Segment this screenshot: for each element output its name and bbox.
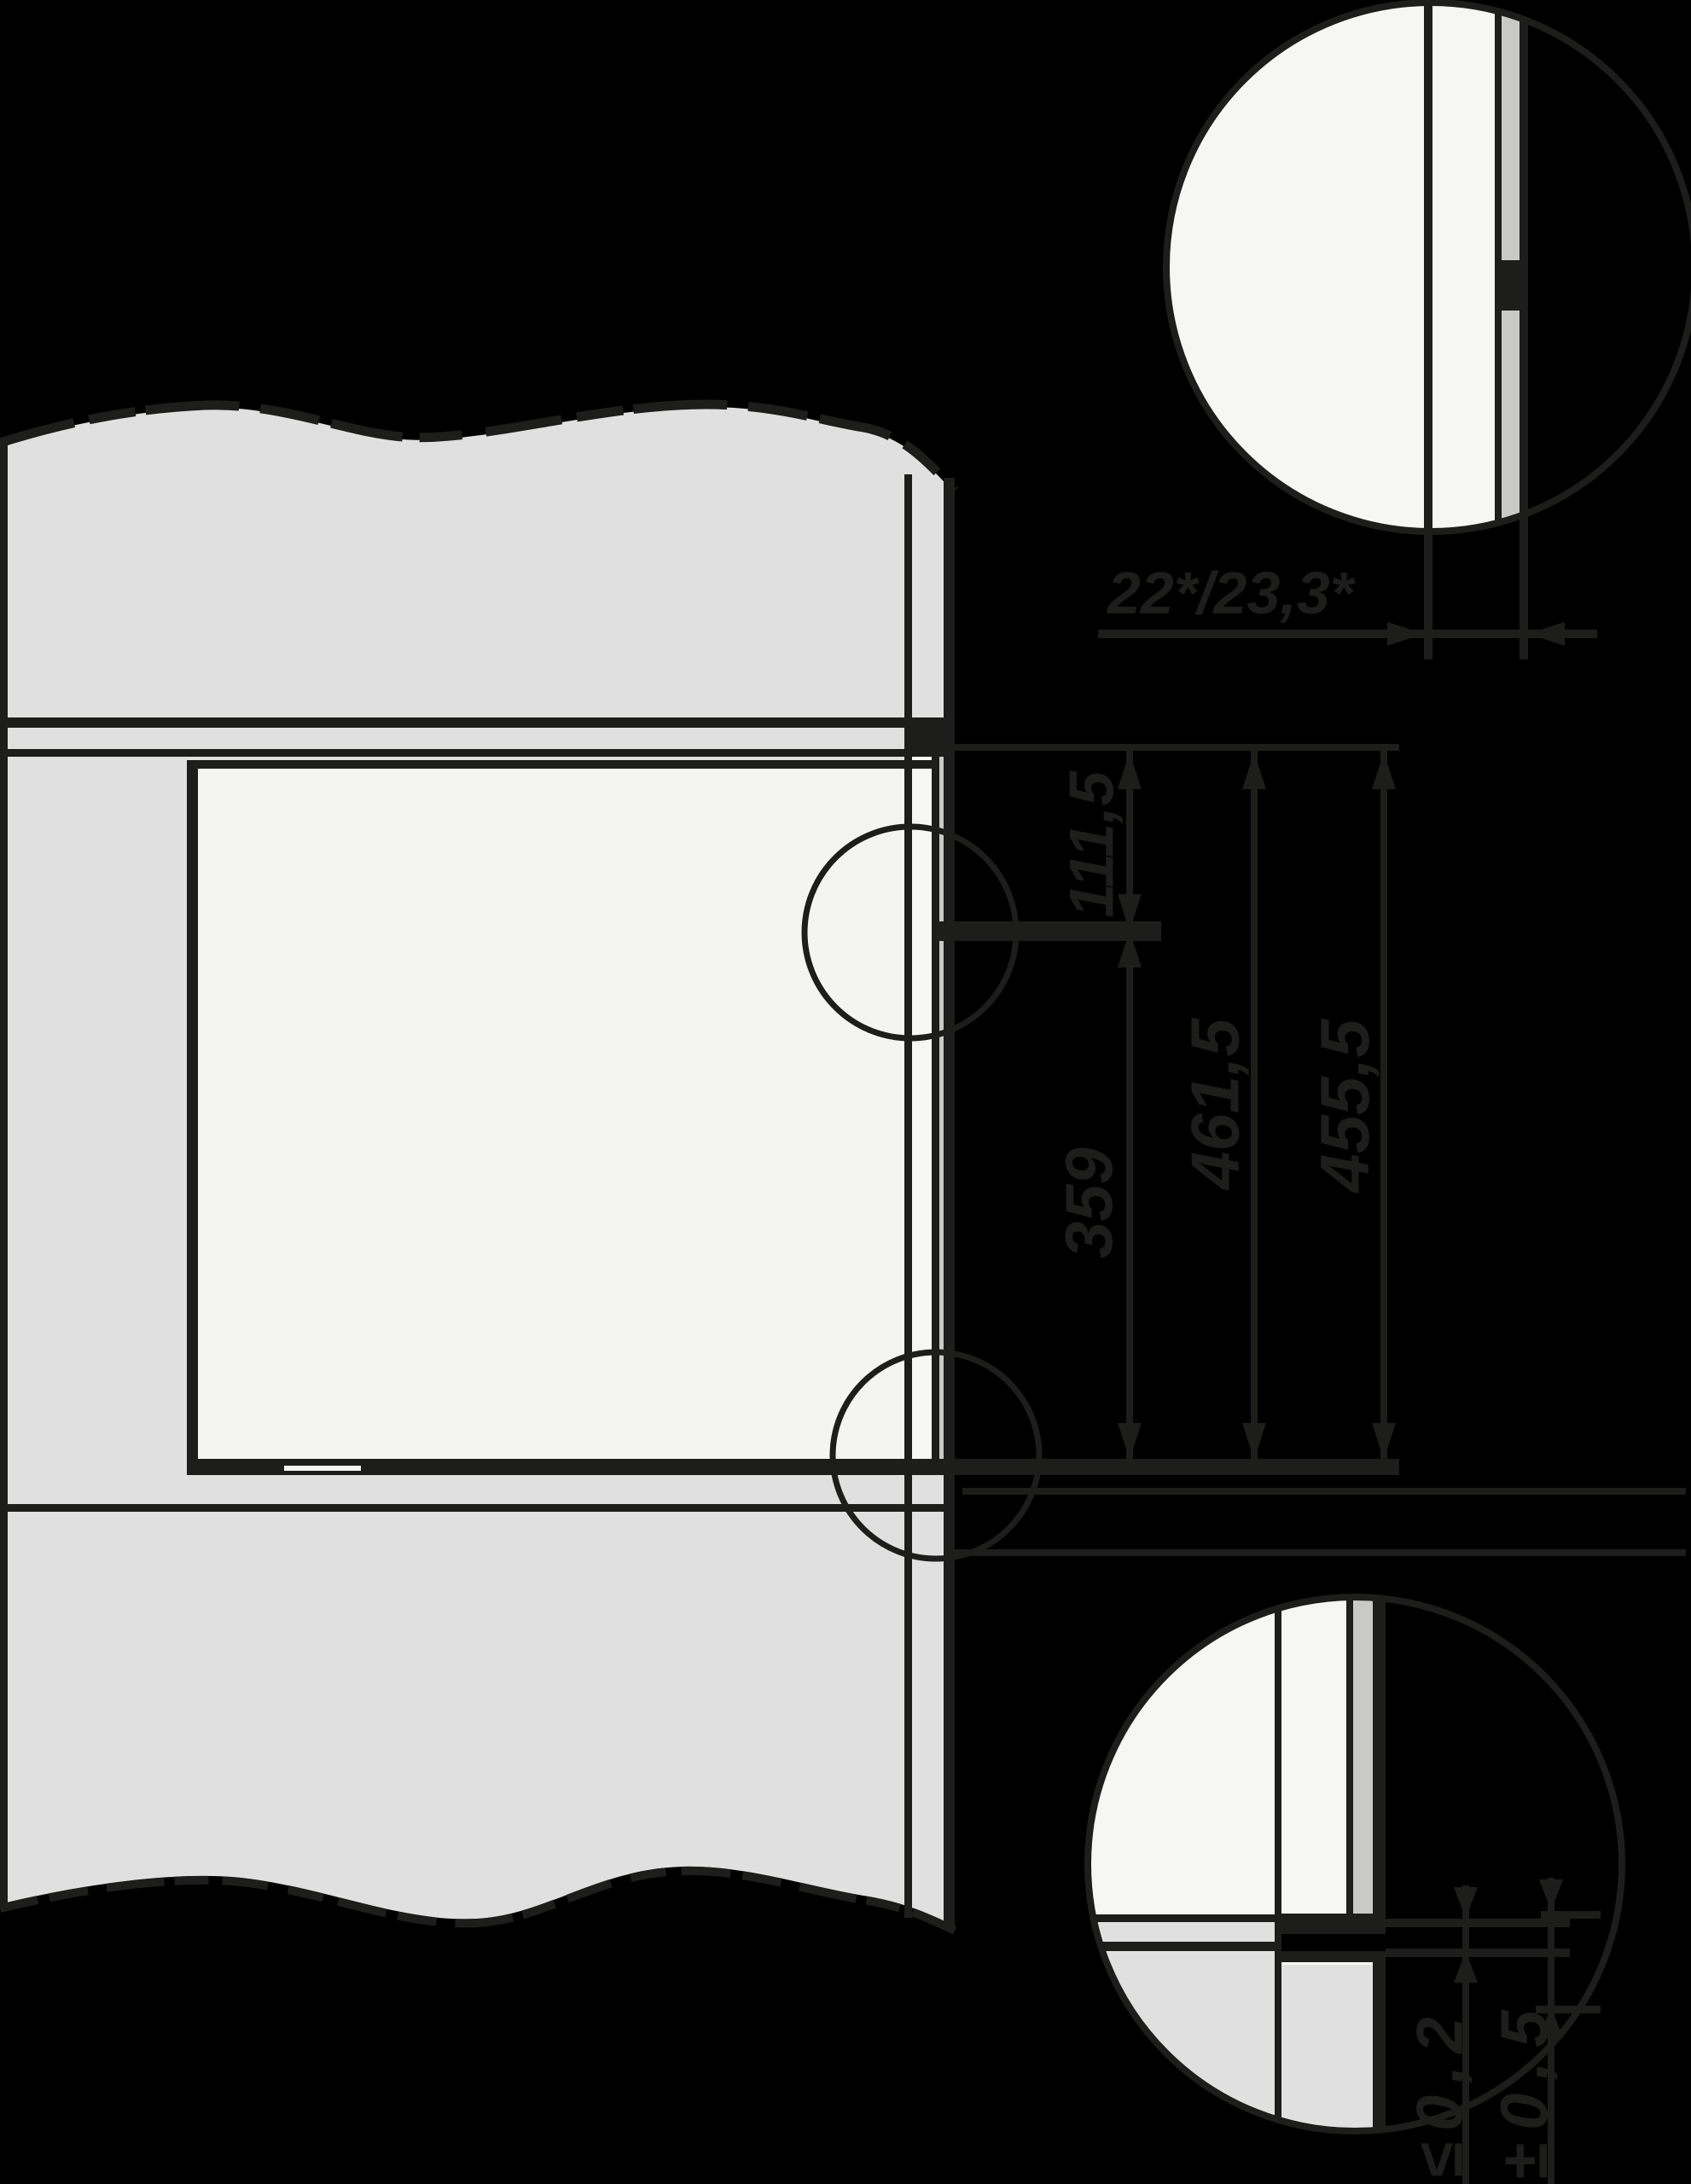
svg-text:455,5: 455,5 [1307,1019,1384,1194]
svg-text:≤0,2: ≤0,2 [1404,2005,1477,2178]
svg-text:359: 359 [1051,1147,1126,1258]
svg-text:461,5: 461,5 [1177,1017,1253,1191]
svg-text:111,5: 111,5 [1058,770,1127,918]
svg-text:22*/23,3*: 22*/23,3* [1106,560,1356,626]
svg-text:±0,5: ±0,5 [1486,1996,1561,2180]
